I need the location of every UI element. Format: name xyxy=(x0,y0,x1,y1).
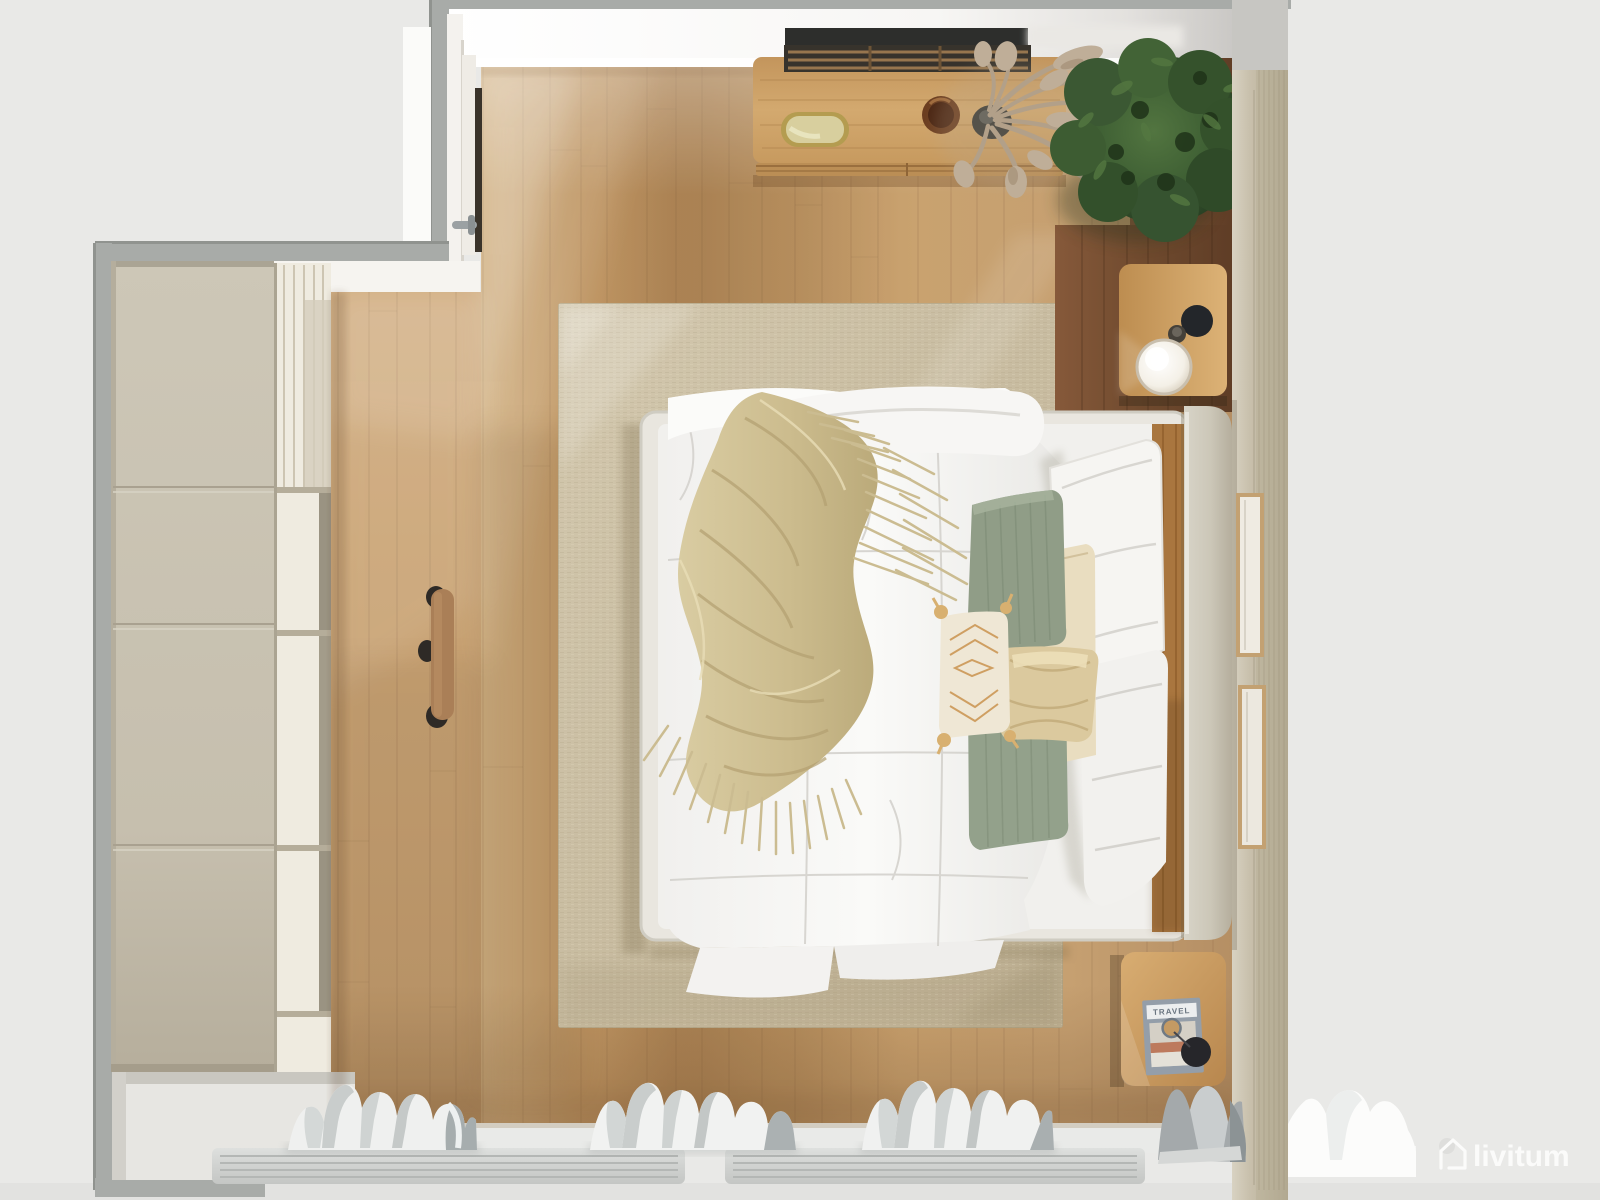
svg-text:livitum: livitum xyxy=(1473,1140,1570,1173)
